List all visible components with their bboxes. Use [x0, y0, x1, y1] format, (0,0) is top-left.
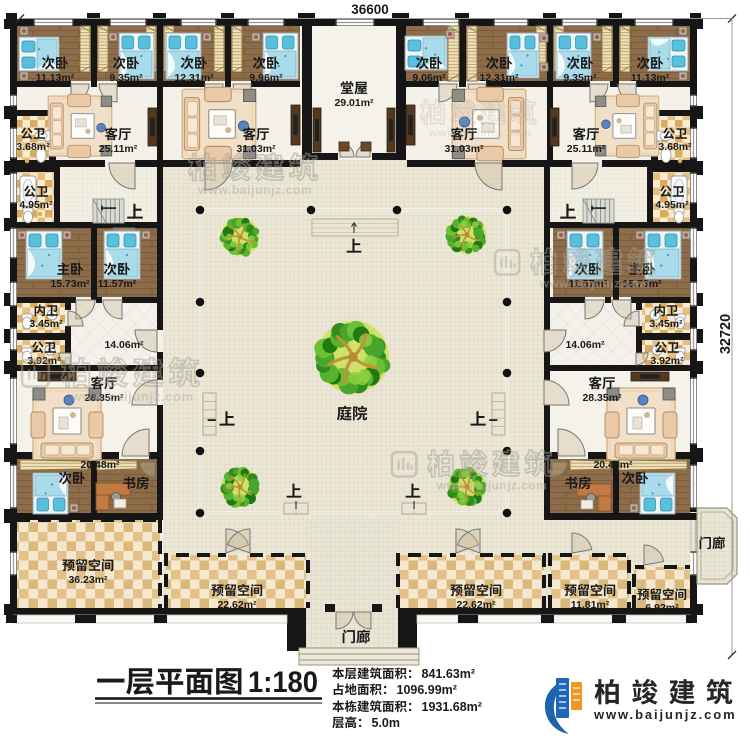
svg-text:3.45m²: 3.45m²: [29, 318, 63, 330]
svg-text:4.95m²: 4.95m²: [19, 199, 53, 211]
svg-text:11.81m²: 11.81m²: [571, 599, 610, 611]
svg-text:32720: 32720: [718, 314, 734, 354]
svg-text:9.35m²: 9.35m²: [109, 72, 143, 84]
svg-text:28.35m²: 28.35m²: [582, 392, 622, 404]
svg-text:1096.99m²: 1096.99m²: [397, 683, 457, 697]
svg-text:3.68m²: 3.68m²: [658, 141, 692, 153]
svg-text:5.0m: 5.0m: [372, 716, 401, 730]
svg-text:11.57m²: 11.57m²: [98, 278, 137, 290]
svg-text:3.92m²: 3.92m²: [650, 355, 684, 367]
svg-text:15.73m²: 15.73m²: [50, 278, 90, 290]
svg-text:4.95m²: 4.95m²: [655, 199, 689, 211]
svg-text:9.96m²: 9.96m²: [249, 72, 283, 84]
svg-text:9.06m²: 9.06m²: [412, 72, 446, 84]
svg-text:9.35m²: 9.35m²: [563, 72, 597, 84]
svg-text:3.68m²: 3.68m²: [16, 141, 50, 153]
svg-text:29.01m²: 29.01m²: [334, 97, 374, 109]
svg-text:841.63m²: 841.63m²: [422, 667, 476, 681]
svg-text:1931.68m²: 1931.68m²: [422, 700, 482, 714]
svg-text:www.baijunjz.com: www.baijunjz.com: [428, 127, 531, 139]
svg-text:36600: 36600: [351, 2, 389, 17]
svg-text:20.48m²: 20.48m²: [80, 459, 120, 471]
svg-text:25.11m²: 25.11m²: [567, 143, 606, 155]
svg-text:12.31m²: 12.31m²: [174, 72, 214, 84]
svg-text:12.31m²: 12.31m²: [479, 72, 519, 84]
svg-text:22.62m²: 22.62m²: [456, 599, 496, 611]
svg-text:6.92m²: 6.92m²: [645, 602, 679, 614]
svg-text:www.baijunjz.com: www.baijunjz.com: [539, 277, 650, 290]
svg-text:3.45m²: 3.45m²: [649, 318, 683, 330]
svg-text:31.03m²: 31.03m²: [236, 143, 276, 155]
svg-text:14.06m²: 14.06m²: [104, 339, 144, 351]
svg-text:25.11m²: 25.11m²: [99, 143, 138, 155]
svg-text:www.baijunjz.com: www.baijunjz.com: [593, 707, 737, 722]
svg-text:11.13m²: 11.13m²: [631, 72, 670, 84]
svg-text:1:180: 1:180: [248, 666, 318, 699]
svg-text:20.48m²: 20.48m²: [593, 459, 633, 471]
svg-text:22.62m²: 22.62m²: [217, 599, 257, 611]
svg-text:www.baijunjz.com: www.baijunjz.com: [436, 479, 547, 492]
svg-text:11.13m²: 11.13m²: [36, 72, 75, 84]
svg-text:www.baijunjz.com: www.baijunjz.com: [71, 389, 194, 404]
svg-text:31.03m²: 31.03m²: [444, 143, 484, 155]
svg-text:36.23m²: 36.23m²: [68, 574, 108, 586]
svg-text:www.baijunjz.com: www.baijunjz.com: [197, 183, 312, 197]
svg-text:14.06m²: 14.06m²: [565, 339, 605, 351]
